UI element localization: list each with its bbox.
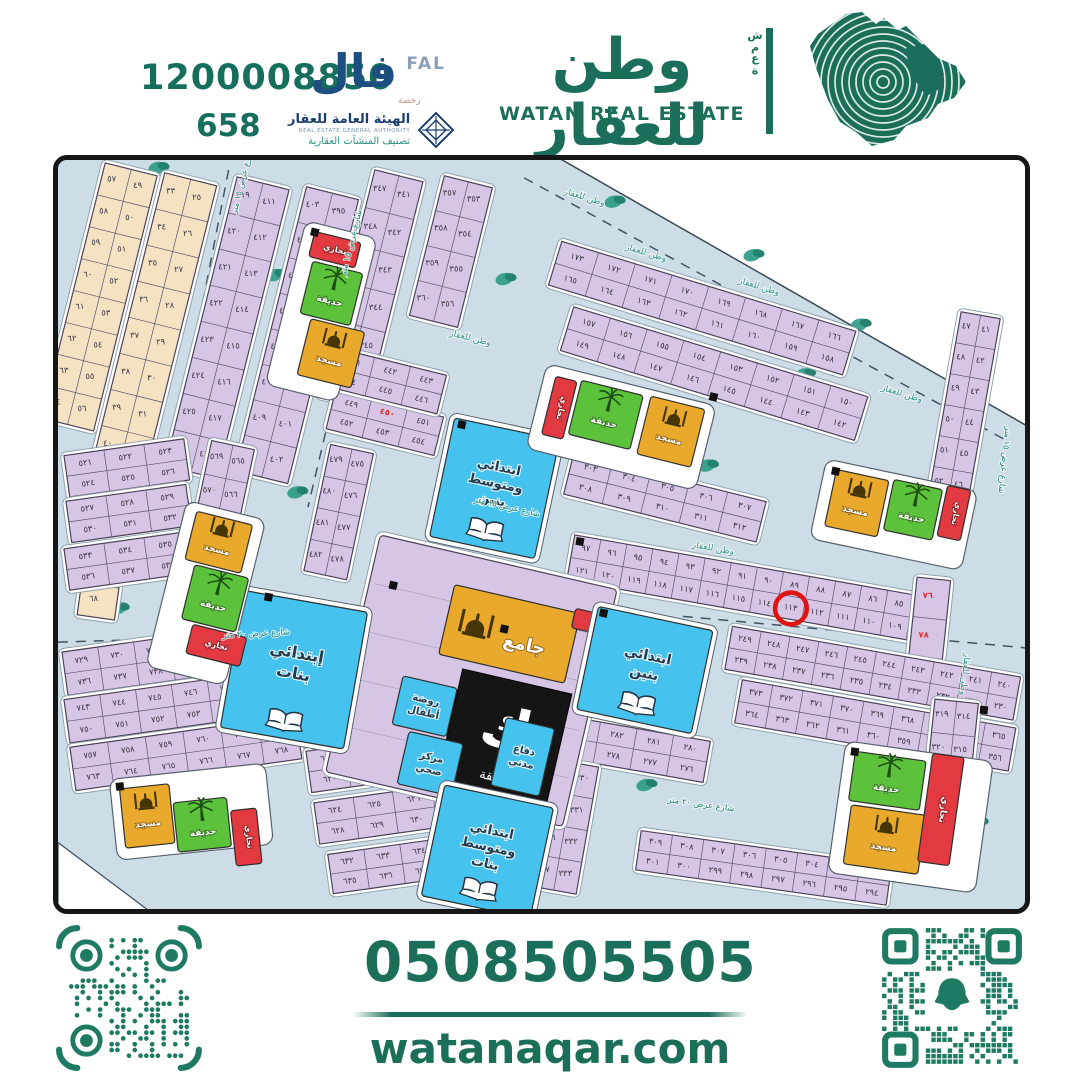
svg-text:٣١٥: ٣١٥ xyxy=(953,744,967,754)
svg-text:٥٦٥: ٥٦٥ xyxy=(231,456,245,466)
svg-text:٧٦٧: ٧٦٧ xyxy=(236,749,251,761)
svg-text:٥٢٤: ٥٢٤ xyxy=(81,477,96,489)
svg-text:٣٤٢: ٣٤٢ xyxy=(388,227,402,237)
svg-text:٣٠٨: ٣٠٨ xyxy=(679,840,694,852)
svg-text:٧٤٣: ٧٤٣ xyxy=(76,701,91,713)
svg-text:٥٣٠: ٥٣٠ xyxy=(83,523,98,535)
svg-text:٣٥٥: ٣٥٥ xyxy=(449,263,463,273)
svg-text:٤٧٨: ٤٧٨ xyxy=(330,553,344,563)
brand-wordmark-ar: وطن للعقار xyxy=(497,28,747,159)
svg-text:٥٣٥: ٥٣٥ xyxy=(158,538,173,550)
svg-text:٧٦: ٧٦ xyxy=(923,590,933,600)
svg-text:٣٣١: ٣٣١ xyxy=(570,804,584,814)
svg-text:٢٩٥: ٢٩٥ xyxy=(833,882,848,894)
authority-diamond-icon xyxy=(416,110,456,150)
block-masjid: مسجد xyxy=(119,784,175,848)
svg-text:٩٥: ٩٥ xyxy=(633,551,644,562)
svg-text:٣٧: ٣٧ xyxy=(130,330,140,340)
svg-text:٣٢٠: ٣٢٠ xyxy=(932,742,946,752)
whatsapp-number: 0508505505 xyxy=(364,930,757,994)
svg-text:٥٣٣: ٥٣٣ xyxy=(78,550,93,562)
svg-text:٥٣١: ٥٣١ xyxy=(123,517,138,529)
saudi-map-fingerprint-icon xyxy=(788,4,988,152)
svg-text:٦٢٨: ٦٢٨ xyxy=(330,824,345,836)
svg-text:٦٣٦: ٦٣٦ xyxy=(378,869,393,881)
svg-text:٤١٢: ٤١٢ xyxy=(253,232,267,242)
svg-text:٥٦٦: ٥٦٦ xyxy=(224,489,238,499)
svg-text:٣٣٣: ٣٣٣ xyxy=(559,868,573,878)
svg-text:٣٤٨: ٣٤٨ xyxy=(364,221,378,231)
svg-text:٦١: ٦١ xyxy=(75,301,84,311)
svg-text:٢٩٤: ٢٩٤ xyxy=(865,886,880,898)
block-marker xyxy=(457,420,466,429)
svg-text:٣٣: ٣٣ xyxy=(166,185,176,195)
block-hadiqa: حديقة xyxy=(173,795,232,852)
svg-text:٤٩: ٤٩ xyxy=(133,180,143,190)
svg-text:٣٤١: ٣٤١ xyxy=(397,189,411,199)
svg-text:٩٤: ٩٤ xyxy=(659,556,670,567)
svg-text:٦٤: ٦٤ xyxy=(58,397,61,407)
svg-text:٧٤٤: ٧٤٤ xyxy=(112,696,127,708)
qr-code-snapchat xyxy=(876,922,1028,1074)
svg-text:٧٣٧: ٧٣٧ xyxy=(113,670,128,682)
svg-text:٣٥٣: ٣٥٣ xyxy=(467,194,481,204)
svg-text:٧٤٦: ٧٤٦ xyxy=(183,686,198,698)
svg-text:٢٩٦: ٢٩٦ xyxy=(802,877,817,889)
svg-text:٩٠: ٩٠ xyxy=(763,574,774,585)
block-marker xyxy=(850,747,859,756)
svg-text:٧٥٣: ٧٥٣ xyxy=(186,708,201,720)
svg-text:٤١١: ٤١١ xyxy=(262,196,276,206)
svg-text:٥٣٢: ٥٣٢ xyxy=(163,511,178,523)
fal-logo-ar: فال xyxy=(310,44,397,98)
svg-text:٦٣٠: ٦٣٠ xyxy=(409,813,424,825)
map-canvas: ٤٩٥٠٥١٥٢٥٣٥٤٥٥٥٦٥٧٥٨٥٩٦٠٦١٦٢٦٣٦٤٢٥٢٦٢٧٢٨… xyxy=(58,160,1025,909)
svg-text:٦٣٣: ٦٣٣ xyxy=(376,850,391,862)
svg-text:٥٢٨: ٥٢٨ xyxy=(120,496,135,508)
svg-text:٤٠٣: ٤٠٣ xyxy=(306,199,320,209)
svg-text:٤٧٧: ٤٧٧ xyxy=(337,522,351,532)
svg-text:٤٢٤: ٤٢٤ xyxy=(191,370,205,380)
svg-text:٥٩: ٥٩ xyxy=(91,237,101,247)
svg-text:٥١: ٥١ xyxy=(117,244,126,254)
svg-text:٢٧: ٢٧ xyxy=(174,264,184,274)
svg-text:٥٧: ٥٧ xyxy=(107,173,117,183)
svg-text:٧٦٣: ٧٦٣ xyxy=(86,770,101,782)
svg-text:٢٩٩: ٢٩٩ xyxy=(708,864,723,876)
svg-text:٦٢٥: ٦٢٥ xyxy=(367,798,382,810)
svg-text:٤٢٥: ٤٢٥ xyxy=(182,406,196,416)
svg-text:٤٤: ٤٤ xyxy=(965,417,974,427)
svg-text:٧٦٤: ٧٦٤ xyxy=(123,765,138,777)
svg-text:٣٠٧: ٣٠٧ xyxy=(711,845,726,857)
svg-text:٧٦٠: ٧٦٠ xyxy=(196,733,211,745)
authority-classification: تصنيف المنشآت العقارية xyxy=(288,136,410,147)
svg-text:٣٥٨: ٣٥٨ xyxy=(434,223,448,233)
svg-text:٢٩٨: ٢٩٨ xyxy=(739,869,754,881)
svg-text:٥٢١: ٥٢١ xyxy=(78,456,93,468)
svg-text:٧٣٠: ٧٣٠ xyxy=(110,649,125,661)
svg-text:٥٣٧: ٥٣٧ xyxy=(121,565,136,577)
svg-text:٣٥٧: ٣٥٧ xyxy=(443,188,457,198)
svg-text:٥٢٥: ٥٢٥ xyxy=(121,471,136,483)
svg-text:٣٦: ٣٦ xyxy=(139,294,149,304)
svg-text:٢٩: ٢٩ xyxy=(156,336,166,346)
svg-text:٥٢٩: ٥٢٩ xyxy=(160,491,175,503)
svg-text:٣٨: ٣٨ xyxy=(121,366,131,376)
svg-text:٥٢٧: ٥٢٧ xyxy=(80,502,95,514)
svg-text:٤٢٣: ٤٢٣ xyxy=(200,334,214,344)
svg-text:٤٨١: ٤٨١ xyxy=(316,517,330,527)
qr-code-website xyxy=(53,922,205,1074)
svg-text:٤١٣: ٤١٣ xyxy=(244,268,258,278)
svg-text:٣٤: ٣٤ xyxy=(157,222,166,232)
footer-divider xyxy=(352,1012,748,1017)
svg-text:٧٥٠: ٧٥٠ xyxy=(79,723,94,735)
svg-text:٢٩٧: ٢٩٧ xyxy=(771,873,786,885)
svg-text:٧٣٦: ٧٣٦ xyxy=(77,675,92,687)
fal-license-word: رخصة xyxy=(398,96,421,106)
plot-strip: ٧٦٧٨ xyxy=(905,573,954,663)
svg-text:٧٥٧: ٧٥٧ xyxy=(83,749,98,761)
svg-text:٦٢: ٦٢ xyxy=(67,333,77,343)
svg-text:٣٠٥: ٣٠٥ xyxy=(773,853,788,865)
svg-text:٥٦٩: ٥٦٩ xyxy=(210,451,224,461)
svg-text:٤٧٦: ٤٧٦ xyxy=(344,490,358,500)
svg-text:٤٨: ٤٨ xyxy=(956,352,966,362)
svg-text:٧٦٨: ٧٦٨ xyxy=(274,744,289,756)
svg-text:٥٤: ٥٤ xyxy=(93,339,102,349)
svg-text:٥٠: ٥٠ xyxy=(125,212,134,222)
svg-text:٧٥٩: ٧٥٩ xyxy=(158,738,173,750)
block-masjid: مسجد xyxy=(825,470,889,537)
svg-text:٧٢٩: ٧٢٩ xyxy=(74,654,89,666)
svg-text:٤٢: ٤٢ xyxy=(976,355,986,365)
svg-text:٣٠: ٣٠ xyxy=(147,372,156,382)
svg-text:٣٠٤: ٣٠٤ xyxy=(805,858,820,870)
svg-text:٥٠: ٥٠ xyxy=(945,413,954,423)
svg-text:٢٨: ٢٨ xyxy=(165,300,175,310)
svg-text:٣٤٣: ٣٤٣ xyxy=(378,264,392,274)
cl-f: حديقةمسجدتجاري xyxy=(828,741,994,893)
svg-text:٤١٧: ٤١٧ xyxy=(208,413,222,423)
real-estate-authority-block: الهيئة العامة للعقار REAL ESTATE GENERAL… xyxy=(288,110,456,150)
website-url: watanaqar.com xyxy=(352,1024,748,1073)
svg-text:٤١: ٤١ xyxy=(981,324,990,334)
svg-text:٤٢٠: ٤٢٠ xyxy=(227,226,241,236)
svg-text:٥٢٦: ٥٢٦ xyxy=(161,466,176,478)
classification-number: 658 xyxy=(196,108,261,144)
svg-text:٣٥٩: ٣٥٩ xyxy=(425,257,439,267)
svg-text:٤٥: ٤٥ xyxy=(959,448,968,458)
authority-name-en: REAL ESTATE GENERAL AUTHORITY xyxy=(288,128,410,134)
svg-text:٤٩: ٤٩ xyxy=(951,383,961,393)
block-marker xyxy=(116,782,125,791)
svg-text:٧٥١: ٧٥١ xyxy=(115,718,130,730)
fal-license-logo: FAL فال xyxy=(296,48,446,94)
svg-text:٢٥: ٢٥ xyxy=(192,192,201,202)
block-marker xyxy=(599,608,608,617)
svg-text:٩١: ٩١ xyxy=(737,570,748,581)
brand-side-word: شمعة xyxy=(746,30,764,76)
svg-text:٣٥: ٣٥ xyxy=(148,258,157,268)
svg-text:٤٨٢: ٤٨٢ xyxy=(309,549,323,559)
svg-text:٤١٥: ٤١٥ xyxy=(226,340,240,350)
svg-text:٤٢١: ٤٢١ xyxy=(218,262,232,272)
svg-text:٣٦٠: ٣٦٠ xyxy=(417,292,431,302)
svg-text:٥٦: ٥٦ xyxy=(77,403,87,413)
svg-text:٢٦: ٢٦ xyxy=(183,228,193,238)
cl-e: مسجدحديقةتجاري xyxy=(109,763,273,866)
svg-text:٣٩٥: ٣٩٥ xyxy=(332,206,346,216)
svg-text:٥٣: ٥٣ xyxy=(101,307,111,317)
svg-text:٣١٤: ٣١٤ xyxy=(957,711,971,721)
svg-text:٣٠٠: ٣٠٠ xyxy=(677,860,692,872)
brand-wordmark-en: WATAN REAL ESTATE xyxy=(497,103,747,125)
svg-text:٤١٤: ٤١٤ xyxy=(235,304,249,314)
svg-text:٦٠: ٦٠ xyxy=(83,269,92,279)
svg-text:٣٤٤: ٣٤٤ xyxy=(369,302,383,312)
subdivision-map: ٤٩٥٠٥١٥٢٥٣٥٤٥٥٥٦٥٧٥٨٥٩٦٠٦١٦٢٦٣٦٤٢٥٢٦٢٧٢٨… xyxy=(53,155,1030,914)
svg-text:٤٣: ٤٣ xyxy=(970,386,980,396)
svg-text:٣٠٦: ٣٠٦ xyxy=(742,849,757,861)
fal-logo-en: FAL xyxy=(406,54,446,74)
svg-text:٥٣٦: ٥٣٦ xyxy=(81,570,96,582)
svg-text:٦٣: ٦٣ xyxy=(59,365,69,375)
svg-text:٤٠١: ٤٠١ xyxy=(279,419,293,429)
svg-text:٤١٦: ٤١٦ xyxy=(217,376,231,386)
svg-text:٦٣٤: ٦٣٤ xyxy=(412,845,427,857)
svg-text:٤٧٥: ٤٧٥ xyxy=(350,459,364,469)
svg-text:٧٦٥: ٧٦٥ xyxy=(161,760,176,772)
svg-text:٦٨: ٦٨ xyxy=(89,593,99,603)
svg-text:٦٣٥: ٦٣٥ xyxy=(342,874,357,886)
block-masjid: مسجد xyxy=(843,805,926,874)
svg-text:٣١: ٣١ xyxy=(138,409,147,419)
svg-text:٣٠١: ٣٠١ xyxy=(645,855,660,867)
block-marker xyxy=(831,467,840,476)
authority-name-ar: الهيئة العامة للعقار xyxy=(288,113,410,127)
svg-text:٤٠٩: ٤٠٩ xyxy=(253,412,267,422)
svg-text:٣٤٧: ٣٤٧ xyxy=(373,183,387,193)
svg-text:٦٢٤: ٦٢٤ xyxy=(327,804,342,816)
svg-text:٥٨: ٥٨ xyxy=(99,205,109,215)
svg-text:٥٣٤: ٥٣٤ xyxy=(118,544,133,556)
svg-text:٤٧٩: ٤٧٩ xyxy=(329,454,343,464)
svg-text:٣٣٢: ٣٣٢ xyxy=(564,836,578,846)
svg-text:٤٠٢: ٤٠٢ xyxy=(270,454,284,464)
block-marker xyxy=(264,593,273,602)
svg-text:٧٨: ٧٨ xyxy=(918,630,929,640)
svg-text:٧٥٨: ٧٥٨ xyxy=(120,743,135,755)
block-marker xyxy=(575,537,584,546)
svg-text:٥٢٣: ٥٢٣ xyxy=(158,445,173,457)
svg-text:٥٧٠: ٥٧٠ xyxy=(203,485,217,495)
block-marker xyxy=(980,706,989,715)
svg-text:٧٤٥: ٧٤٥ xyxy=(147,691,162,703)
svg-text:٤٨٠: ٤٨٠ xyxy=(322,486,336,496)
svg-text:٤٧: ٤٧ xyxy=(962,321,972,331)
block-tijari: تجاري xyxy=(231,808,262,866)
svg-text:٣٥٦: ٣٥٦ xyxy=(441,298,455,308)
svg-text:٦٢٩: ٦٢٩ xyxy=(370,819,385,831)
svg-text:٣١٩: ٣١٩ xyxy=(935,709,949,719)
whatsapp-contact: 0508505505 xyxy=(350,930,750,994)
brand-divider-bar xyxy=(766,28,773,134)
svg-text:٦٣٢: ٦٣٢ xyxy=(340,855,355,867)
svg-text:٣٠٩: ٣٠٩ xyxy=(648,836,663,848)
svg-text:٤٢٢: ٤٢٢ xyxy=(209,298,223,308)
svg-text:٥٥: ٥٥ xyxy=(85,371,94,381)
svg-text:٧٦٦: ٧٦٦ xyxy=(199,754,214,766)
svg-text:٥١: ٥١ xyxy=(940,444,949,454)
svg-text:٥٢: ٥٢ xyxy=(109,276,119,286)
svg-text:٥٢٢: ٥٢٢ xyxy=(118,451,133,463)
svg-text:٣٥٤: ٣٥٤ xyxy=(458,229,472,239)
svg-text:٣٩: ٣٩ xyxy=(112,402,122,412)
svg-text:٧٥٢: ٧٥٢ xyxy=(150,713,165,725)
svg-text:٨٥: ٨٥ xyxy=(894,597,905,608)
